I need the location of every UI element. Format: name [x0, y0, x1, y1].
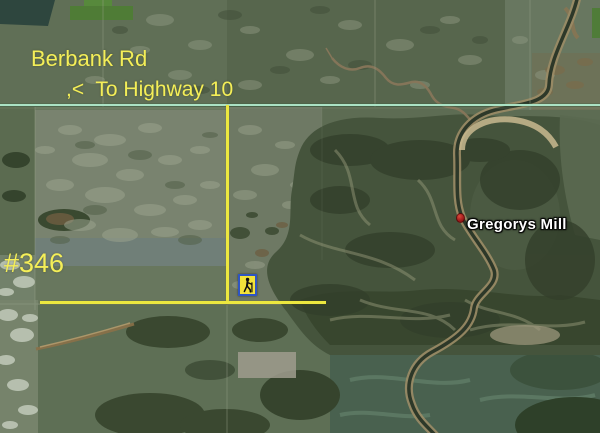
boundary-horizontal-line: [40, 301, 326, 304]
boundary-vertical-line: [226, 105, 229, 304]
road-name-label: Berbank Rd: [31, 47, 147, 71]
satellite-map: Berbank Rd ,< To Highway 10 #346 Gregory…: [0, 0, 600, 433]
hiker-figure-icon: [242, 277, 254, 293]
poi-name-label: Gregorys Mill: [467, 216, 567, 233]
placemark-dot-icon[interactable]: [456, 213, 465, 223]
parcel-number-label: #346: [4, 249, 64, 279]
hiker-waypoint-icon[interactable]: [238, 274, 257, 296]
highway-road-overlay-line: [0, 104, 600, 106]
terrain-forest: [267, 114, 600, 355]
highway-direction-label: ,< To Highway 10: [66, 78, 233, 101]
